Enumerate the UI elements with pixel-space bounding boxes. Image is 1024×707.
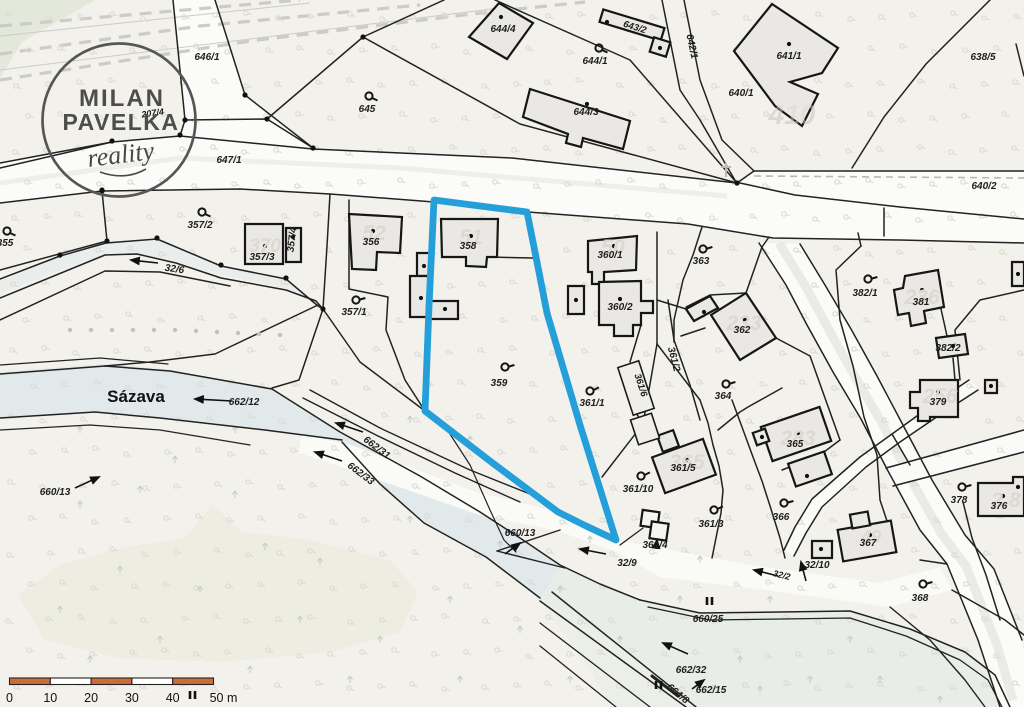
svg-text:364: 364 [715,391,732,402]
svg-text:356: 356 [363,237,380,248]
svg-text:0: 0 [6,691,13,705]
svg-text:382/1: 382/1 [852,288,877,299]
svg-text:361/10: 361/10 [623,484,654,495]
svg-text:368: 368 [912,593,929,604]
svg-text:662/15: 662/15 [696,685,727,696]
svg-text:361/4: 361/4 [642,540,667,551]
svg-text:647/1: 647/1 [216,155,241,166]
svg-text:361/5: 361/5 [670,463,695,474]
svg-text:359: 359 [491,378,508,389]
svg-text:410: 410 [768,99,816,130]
svg-text:366: 366 [773,512,790,523]
svg-text:376: 376 [991,501,1008,512]
svg-text:357/1: 357/1 [341,307,366,318]
svg-text:367: 367 [860,538,877,549]
svg-text:646/1: 646/1 [194,52,219,63]
svg-text:644/3: 644/3 [573,107,598,118]
svg-text:662/12: 662/12 [229,397,260,408]
svg-text:638/5: 638/5 [970,52,995,63]
svg-text:641/1: 641/1 [776,51,801,62]
svg-text:660/13: 660/13 [40,487,71,498]
svg-text:381: 381 [913,297,930,308]
svg-text:Sázava: Sázava [107,387,165,406]
svg-text:50 m: 50 m [210,691,238,705]
svg-text:20: 20 [84,691,98,705]
svg-text:660/13: 660/13 [505,528,536,539]
svg-text:360/2: 360/2 [607,302,632,313]
svg-text:10: 10 [43,691,57,705]
svg-text:361/3: 361/3 [698,519,723,530]
svg-text:40: 40 [166,691,180,705]
svg-text:355: 355 [0,238,14,249]
svg-text:379: 379 [930,397,947,408]
svg-text:362: 362 [734,325,751,336]
svg-text:640/1: 640/1 [728,88,753,99]
svg-text:365: 365 [787,439,804,450]
svg-text:644/1: 644/1 [582,56,607,67]
svg-text:662/32: 662/32 [676,665,707,676]
svg-text:PAVELKA: PAVELKA [63,109,180,135]
svg-text:660/25: 660/25 [693,614,724,625]
svg-text:32/9: 32/9 [617,558,637,569]
svg-text:361/1: 361/1 [579,398,604,409]
svg-text:MILAN: MILAN [79,85,165,112]
svg-text:358: 358 [460,241,477,252]
svg-text:378: 378 [951,495,968,506]
svg-text:360/1: 360/1 [597,250,622,261]
svg-text:645: 645 [359,104,376,115]
svg-text:363: 363 [693,256,710,267]
svg-text:382/2: 382/2 [935,343,960,354]
svg-text:640/2: 640/2 [971,181,996,192]
svg-text:357/2: 357/2 [187,220,212,231]
svg-text:32/10: 32/10 [804,560,829,571]
svg-text:30: 30 [125,691,139,705]
svg-text:644/4: 644/4 [490,24,515,35]
svg-text:357/3: 357/3 [249,252,274,263]
